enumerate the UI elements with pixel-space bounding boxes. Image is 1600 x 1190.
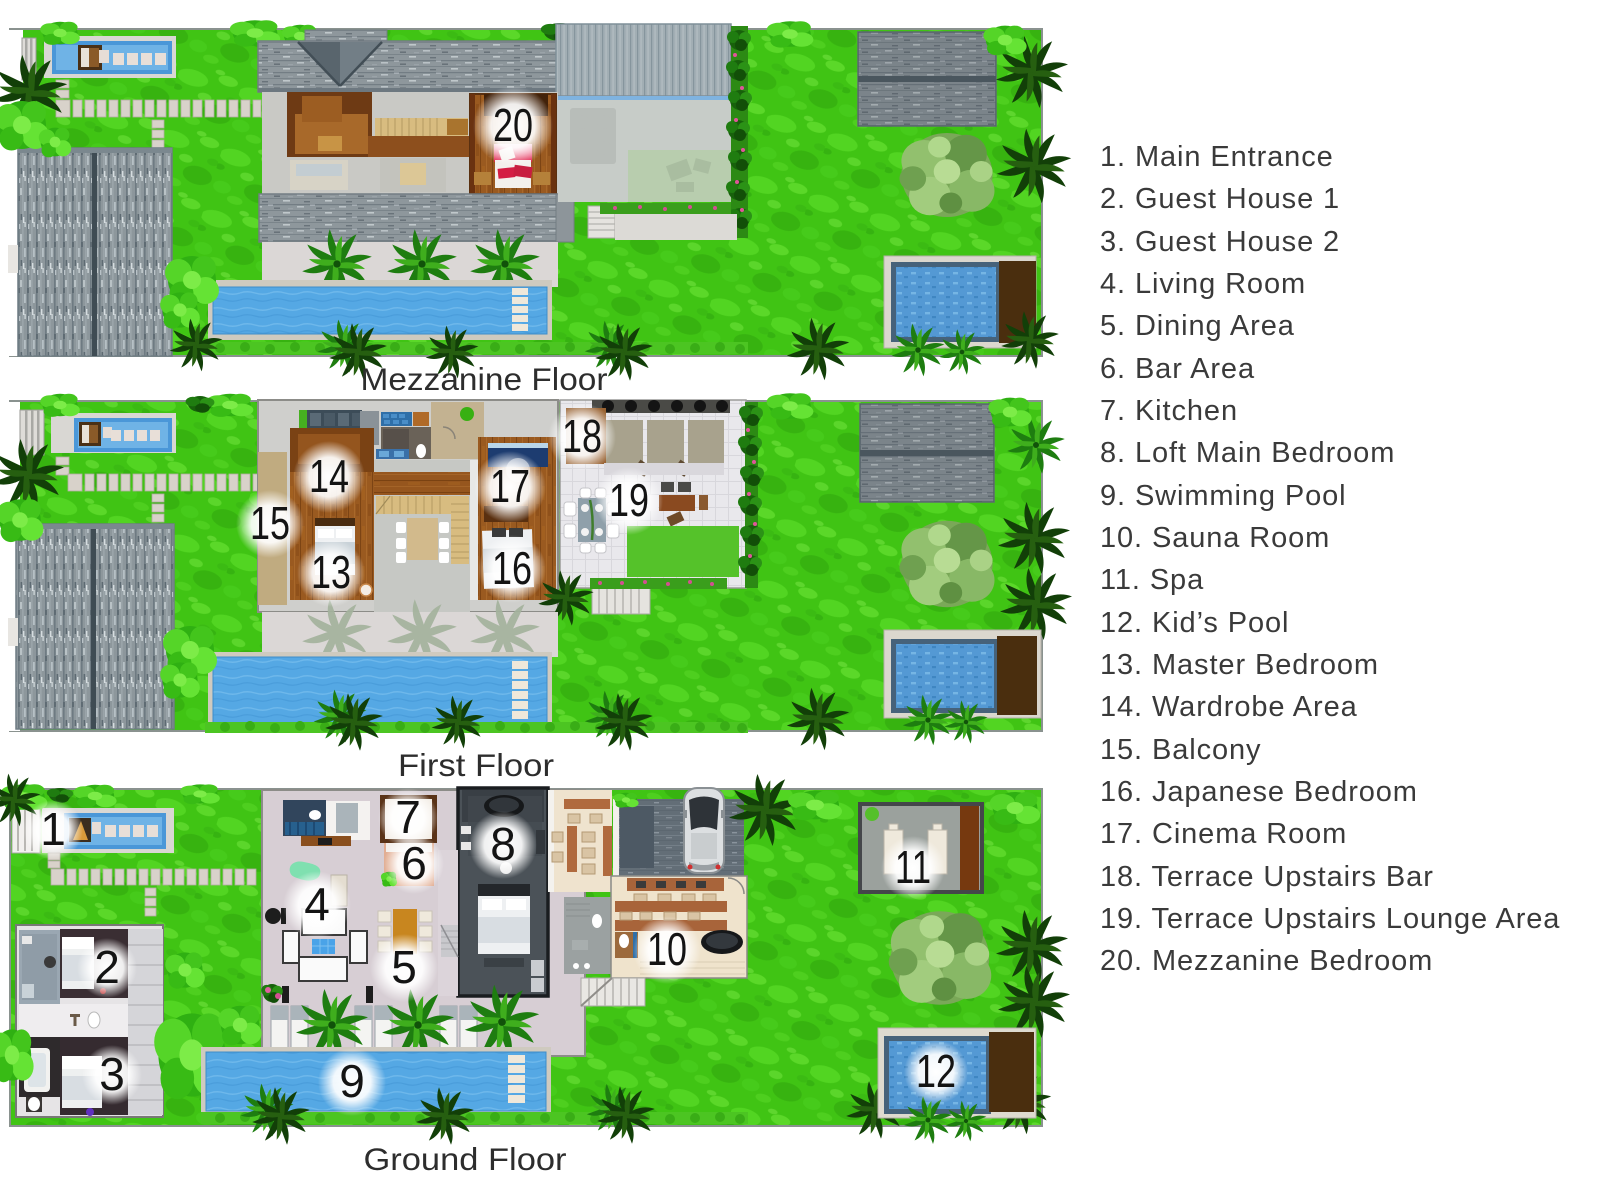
svg-text:10: 10 bbox=[647, 923, 687, 975]
svg-text:Mezzanine Floor: Mezzanine Floor bbox=[361, 361, 608, 397]
svg-text:17: 17 bbox=[490, 460, 530, 512]
svg-text:8. Loft Main Bedroom: 8. Loft Main Bedroom bbox=[1100, 437, 1395, 469]
svg-text:5. Dining Area: 5. Dining Area bbox=[1100, 310, 1295, 342]
svg-text:11: 11 bbox=[895, 841, 931, 893]
svg-text:7. Kitchen: 7. Kitchen bbox=[1100, 395, 1238, 427]
svg-text:16: 16 bbox=[492, 542, 532, 594]
svg-text:15. Balcony: 15. Balcony bbox=[1100, 734, 1261, 766]
svg-text:13. Master Bedroom: 13. Master Bedroom bbox=[1100, 649, 1379, 681]
svg-text:12. Kid’s Pool: 12. Kid’s Pool bbox=[1100, 607, 1289, 639]
svg-text:7: 7 bbox=[395, 791, 421, 843]
svg-text:First Floor: First Floor bbox=[398, 747, 554, 783]
svg-text:1. Main Entrance: 1. Main Entrance bbox=[1100, 141, 1334, 173]
svg-text:12: 12 bbox=[916, 1045, 956, 1097]
svg-text:3: 3 bbox=[99, 1048, 125, 1100]
svg-text:14: 14 bbox=[309, 450, 349, 502]
svg-text:4: 4 bbox=[304, 878, 330, 930]
svg-text:11. Spa: 11. Spa bbox=[1100, 564, 1204, 596]
svg-text:3. Guest House 2: 3. Guest House 2 bbox=[1100, 226, 1340, 258]
svg-text:2. Guest House 1: 2. Guest House 1 bbox=[1100, 183, 1340, 215]
svg-text:6. Bar Area: 6. Bar Area bbox=[1100, 353, 1255, 385]
svg-text:14. Wardrobe Area: 14. Wardrobe Area bbox=[1100, 691, 1358, 723]
svg-text:18. Terrace Upstairs Bar: 18. Terrace Upstairs Bar bbox=[1100, 861, 1434, 893]
svg-text:Ground Floor: Ground Floor bbox=[364, 1141, 567, 1177]
svg-text:18: 18 bbox=[562, 410, 602, 462]
svg-text:15: 15 bbox=[250, 497, 290, 549]
svg-text:13: 13 bbox=[311, 546, 351, 598]
svg-text:20. Mezzanine Bedroom: 20. Mezzanine Bedroom bbox=[1100, 945, 1433, 977]
svg-text:9: 9 bbox=[339, 1055, 365, 1107]
svg-text:20: 20 bbox=[493, 99, 533, 151]
svg-text:8: 8 bbox=[490, 818, 516, 870]
svg-text:1: 1 bbox=[40, 803, 66, 855]
svg-text:2: 2 bbox=[94, 941, 120, 993]
svg-text:4. Living Room: 4. Living Room bbox=[1100, 268, 1306, 300]
svg-text:9. Swimming Pool: 9. Swimming Pool bbox=[1100, 480, 1347, 512]
svg-text:19. Terrace Upstairs Lounge Ar: 19. Terrace Upstairs Lounge Area bbox=[1100, 903, 1560, 935]
svg-text:19: 19 bbox=[609, 474, 649, 526]
svg-text:17. Cinema Room: 17. Cinema Room bbox=[1100, 818, 1347, 850]
svg-text:10. Sauna Room: 10. Sauna Room bbox=[1100, 522, 1330, 554]
svg-text:16. Japanese Bedroom: 16. Japanese Bedroom bbox=[1100, 776, 1418, 808]
svg-text:5: 5 bbox=[391, 941, 417, 993]
